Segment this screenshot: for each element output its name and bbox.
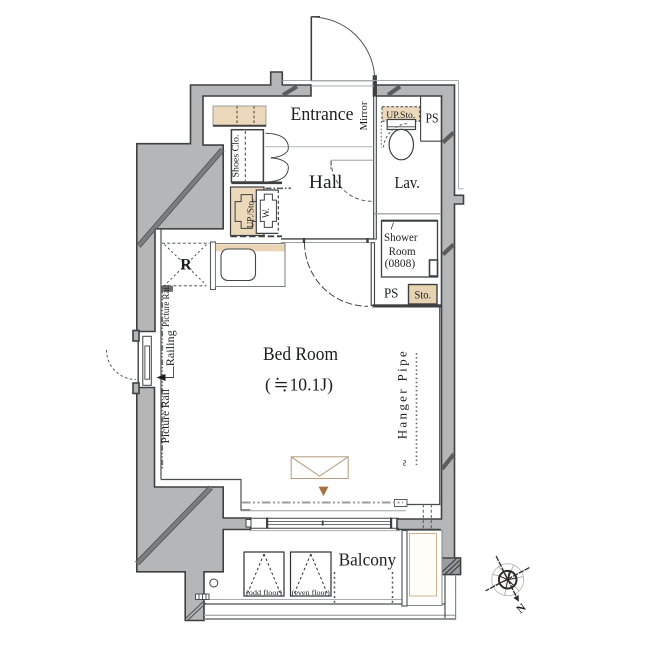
- svg-text:UP./Sto.: UP./Sto.: [246, 199, 256, 229]
- svg-text:Shoes Clo.: Shoes Clo.: [232, 135, 242, 178]
- svg-text:(0808): (0808): [385, 256, 416, 270]
- svg-text:Shower: Shower: [384, 230, 418, 244]
- svg-text:PS: PS: [426, 111, 439, 126]
- svg-text:Entrance: Entrance: [291, 105, 354, 125]
- svg-text:Mirror: Mirror: [359, 101, 370, 131]
- svg-text:(odd floor): (odd floor): [246, 589, 283, 597]
- svg-text:R: R: [180, 257, 192, 274]
- svg-text:Hanger Pipe: Hanger Pipe: [395, 351, 410, 439]
- svg-text:Picture Rail: Picture Rail: [160, 389, 172, 444]
- svg-text:(: (: [265, 375, 271, 395]
- svg-text:Railing: Railing: [163, 330, 177, 366]
- svg-text:Balcony: Balcony: [339, 550, 397, 570]
- svg-text:Sto.: Sto.: [415, 289, 432, 301]
- svg-text:N: N: [515, 601, 530, 616]
- svg-text:10.1J): 10.1J): [290, 375, 334, 395]
- svg-text:UP.Sto.: UP.Sto.: [386, 111, 415, 121]
- svg-text:W.: W.: [262, 208, 272, 218]
- svg-text:(even floor): (even floor): [292, 589, 331, 597]
- svg-text:Hall: Hall: [309, 173, 343, 193]
- svg-text:Picture Rail: Picture Rail: [161, 284, 171, 327]
- svg-text:PS: PS: [384, 286, 399, 301]
- svg-text:Bed Room: Bed Room: [263, 345, 339, 365]
- svg-text:Lav.: Lav.: [394, 173, 420, 192]
